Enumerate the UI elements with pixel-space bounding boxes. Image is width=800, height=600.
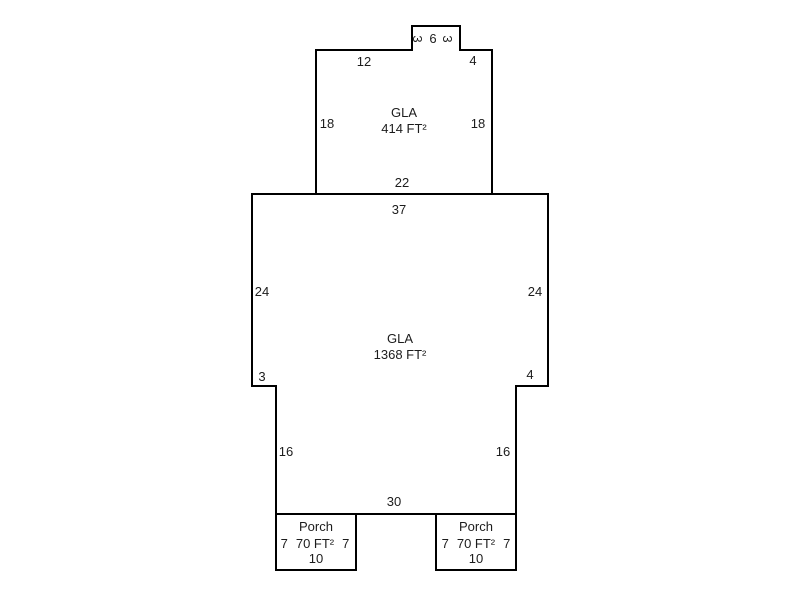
dim-bump-side-left: 3 bbox=[409, 35, 425, 42]
porch-right-bottom: 10 bbox=[469, 551, 483, 567]
porch-left-dims: 7 70 FT² 7 bbox=[281, 536, 350, 552]
main-gla-name: GLA bbox=[374, 331, 427, 347]
porch-left-area: 70 FT² bbox=[296, 536, 334, 552]
porch-left-side-left: 7 bbox=[281, 536, 288, 552]
porch-right-side-left: 7 bbox=[442, 536, 449, 552]
upper-gla-name: GLA bbox=[381, 105, 427, 121]
dim-main-top: 37 bbox=[392, 202, 406, 218]
porch-right-title: Porch bbox=[459, 519, 493, 535]
upper-gla-label: GLA 414 FT² bbox=[381, 105, 427, 137]
dim-upper-top-left: 12 bbox=[357, 54, 371, 70]
dim-upper-bottom: 22 bbox=[395, 175, 409, 191]
main-gla-label: GLA 1368 FT² bbox=[374, 331, 427, 363]
dim-main-side-right: 24 bbox=[528, 284, 542, 300]
gla-outline-path bbox=[252, 26, 548, 514]
dim-bump-top: 6 bbox=[429, 31, 436, 47]
porch-left-side-right: 7 bbox=[342, 536, 349, 552]
dim-main-bottom: 30 bbox=[387, 494, 401, 510]
dim-main-step-left: 3 bbox=[258, 369, 265, 385]
dim-upper-side-right: 18 bbox=[471, 116, 485, 132]
floorplan-sketch-canvas: 3 6 3 12 4 18 18 GLA 414 FT² 22 37 24 24… bbox=[0, 0, 800, 600]
dim-upper-side-left: 18 bbox=[320, 116, 334, 132]
floorplan-outline-svg bbox=[0, 0, 800, 600]
dim-main-step-right: 4 bbox=[526, 367, 533, 383]
porch-right-area: 70 FT² bbox=[457, 536, 495, 552]
porch-left-title: Porch bbox=[299, 519, 333, 535]
dim-upper-top-right: 4 bbox=[469, 53, 476, 69]
dim-bump-side-right: 3 bbox=[439, 35, 455, 42]
main-gla-area: 1368 FT² bbox=[374, 347, 427, 363]
dim-lower-side-left: 16 bbox=[279, 444, 293, 460]
porch-right-dims: 7 70 FT² 7 bbox=[442, 536, 511, 552]
dim-lower-side-right: 16 bbox=[496, 444, 510, 460]
dim-main-side-left: 24 bbox=[255, 284, 269, 300]
porch-left-bottom: 10 bbox=[309, 551, 323, 567]
upper-gla-area: 414 FT² bbox=[381, 121, 427, 137]
porch-right-side-right: 7 bbox=[503, 536, 510, 552]
